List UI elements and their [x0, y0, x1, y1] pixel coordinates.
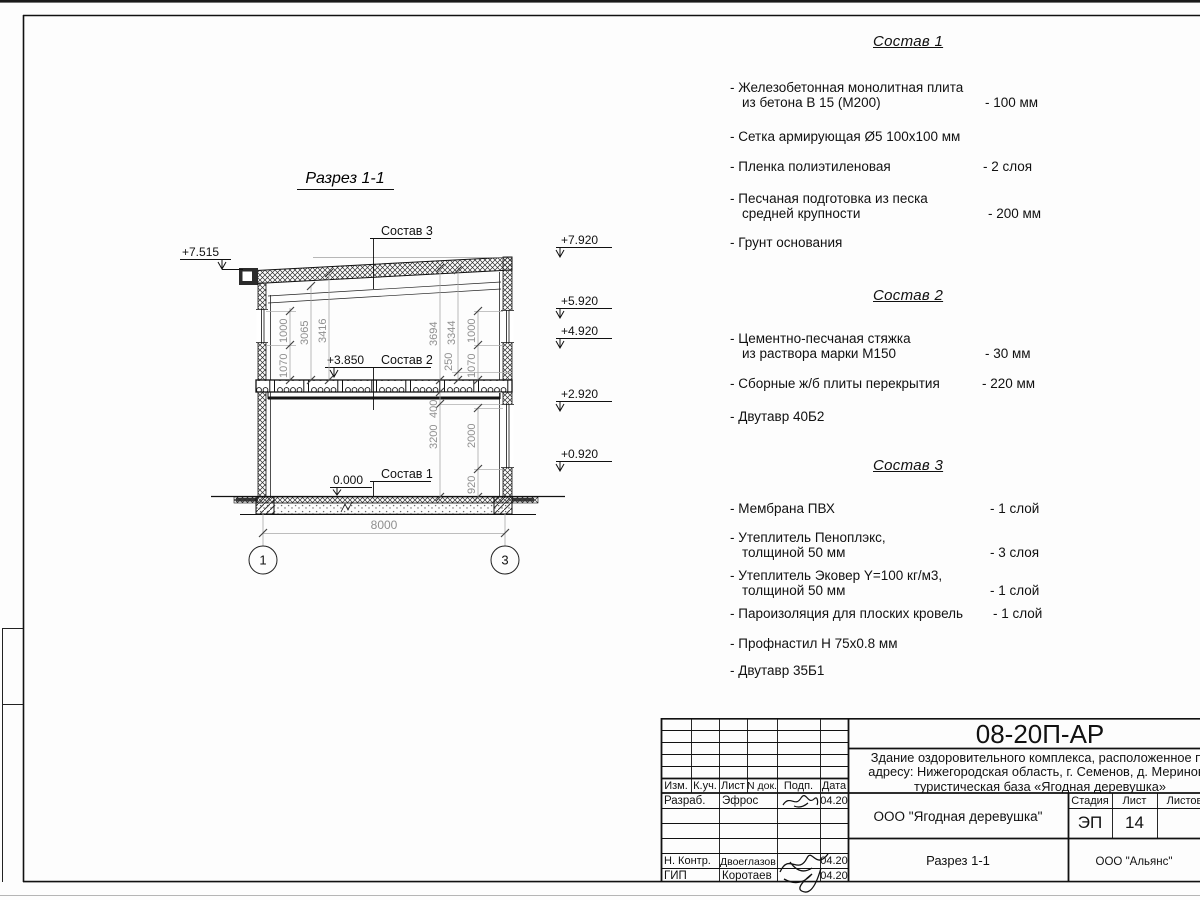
spec1-title: Состав 1 — [873, 33, 943, 50]
svg-text:3200: 3200 — [428, 425, 440, 449]
spec-item: - Железобетонная монолитная плита из бет… — [730, 80, 992, 110]
svg-text:3694: 3694 — [428, 322, 440, 346]
spec-item: - Мембрана ПВХ — [730, 501, 992, 516]
spec-item-value: - 30 мм — [985, 346, 1031, 361]
spec-item: - Сетка армирующая Ø5 100х100 мм — [730, 129, 992, 144]
svg-text:8000: 8000 — [371, 518, 398, 532]
tb-role-gip: ГИП — [664, 870, 687, 882]
svg-text:3065: 3065 — [299, 321, 311, 345]
axis-markers: 1 3 — [249, 546, 519, 574]
svg-text:+7.920: +7.920 — [561, 233, 598, 247]
spec-item: - Двутавр 40Б2 — [730, 409, 992, 424]
right-lower-window — [502, 404, 514, 468]
tb-col-data: Дата — [820, 780, 848, 792]
svg-text:920: 920 — [466, 476, 478, 494]
spec2-title: Состав 2 — [873, 287, 943, 304]
svg-text:+2.920: +2.920 — [561, 387, 598, 401]
tb-col-list: Лист — [719, 780, 747, 792]
svg-text:+5.920: +5.920 — [561, 294, 598, 308]
right-foundation — [494, 497, 512, 514]
svg-text:+3.850: +3.850 — [327, 353, 364, 367]
svg-text:2000: 2000 — [466, 424, 478, 448]
tb-name-gip: Коротаев — [722, 870, 772, 882]
svg-text:1070: 1070 — [278, 354, 290, 378]
spec3-title: Состав 3 — [873, 457, 943, 474]
company-name: ООО "Ягодная деревушка" — [848, 809, 1068, 824]
roof-slab — [239, 257, 512, 303]
svg-text:+0.920: +0.920 — [561, 447, 598, 461]
spec-item-value: - 3 слоя — [990, 545, 1039, 560]
label-sostav3: Состав 3 — [381, 224, 433, 238]
tb-col-ndok: N док. — [747, 780, 777, 792]
svg-text:1: 1 — [259, 553, 266, 568]
elevation-right-2920: +2.920 — [556, 387, 612, 411]
tb-date-gip: 04.20 — [820, 870, 848, 882]
sheet-title: Разрез 1-1 — [848, 853, 1068, 868]
spec-item: - Утеплитель Эковер Y=100 кг/м3, толщино… — [730, 568, 992, 598]
spec-item: - Сборные ж/б плиты перекрытия — [730, 376, 992, 391]
sheet-label: Лист — [1112, 795, 1157, 807]
spec-item: - Двутавр 35Б1 — [730, 663, 992, 678]
svg-text:250: 250 — [443, 353, 455, 371]
svg-text:3416: 3416 — [317, 319, 329, 343]
tb-role-razrab: Разраб. — [664, 795, 705, 807]
tb-role-nkontr: Н. Контр. — [664, 855, 711, 867]
svg-text:400: 400 — [428, 400, 440, 418]
ground-floor-slab — [211, 497, 565, 515]
sheets-label: Листов — [1157, 795, 1200, 807]
project-description: Здание оздоровительного комплекса, распо… — [850, 751, 1200, 794]
spec-item-value: - 220 мм — [982, 376, 1035, 391]
doc-number: 08-20П-АР — [848, 719, 1200, 750]
tb-col-izm: Изм. — [661, 780, 691, 792]
tb-name-nkontr: Двоеглазов — [720, 856, 778, 868]
spec-item-value: - 200 мм — [988, 206, 1041, 221]
spec-item-value: - 1 слой — [990, 501, 1039, 516]
elevation-arrow-icon — [330, 488, 372, 496]
elevation-right-5920: +5.920 — [556, 294, 612, 318]
spec-item-value: - 100 мм — [985, 95, 1038, 110]
elevation-arrow-icon — [556, 248, 612, 258]
tb-name-razrab: Эфрос — [722, 795, 758, 807]
tb-col-kuch: К.уч. — [691, 780, 719, 792]
tb-col-podp: Подп. — [777, 780, 820, 792]
right-upper-window — [502, 310, 514, 343]
tb-date-nkontr: 04.20 — [820, 855, 848, 867]
svg-text:1000: 1000 — [278, 319, 290, 343]
spec-item: - Пленка полиэтиленовая — [730, 159, 992, 174]
beam-40b2 — [268, 397, 500, 400]
elevation-right-7920: +7.920 — [556, 233, 612, 257]
elevation-arrow-icon — [180, 260, 243, 270]
floor2-slab — [256, 380, 512, 400]
elevation-right-4920: +4.920 — [556, 324, 612, 348]
label-sostav2: Состав 2 — [381, 353, 433, 367]
section-title-text: Разрез 1-1 — [305, 170, 384, 187]
svg-text:+4.920: +4.920 — [561, 324, 598, 338]
elevation-left-eave: +7.515 — [180, 245, 243, 270]
stage-label: Стадия — [1068, 795, 1112, 807]
tb-date-razrab: 04.20 — [820, 795, 848, 807]
drawing-sheet: { "drawing": { "title": "Разрез 1-1", "e… — [0, 0, 1200, 900]
contractor-name: ООО "Альянс" — [1068, 856, 1200, 868]
spec-item: - Профнастил Н 75х0.8 мм — [730, 636, 992, 651]
elevation-arrow-icon — [556, 339, 612, 349]
elevation-arrow-icon — [556, 402, 612, 412]
spec-item: - Утеплитель Пеноплэкс, толщиной 50 мм — [730, 530, 992, 560]
spec-item-value: - 2 слоя — [983, 159, 1032, 174]
left-window — [257, 309, 268, 343]
svg-text:3: 3 — [501, 553, 508, 568]
spec-item: - Грунт основания — [730, 235, 992, 250]
elevation-floor2: +3.850 — [325, 353, 374, 377]
section-title: Разрез 1-1 — [297, 170, 394, 190]
svg-text:0.000: 0.000 — [333, 473, 363, 487]
spec-item: - Цементно-песчаная стяжка из раствора м… — [730, 331, 992, 361]
svg-text:1070: 1070 — [466, 354, 478, 378]
stage-value: ЭП — [1068, 813, 1112, 833]
svg-text:+7.515: +7.515 — [182, 245, 219, 259]
spec-item-value: - 1 слой — [993, 606, 1042, 621]
elevation-arrow-icon — [556, 309, 612, 319]
left-foundation — [256, 497, 274, 514]
right-wall — [500, 257, 515, 497]
elevation-arrow-icon — [556, 462, 612, 472]
spec-item: - Пароизоляция для плоских кровель — [730, 606, 992, 621]
svg-text:3344: 3344 — [446, 321, 458, 345]
elevation-arrow-icon — [325, 368, 374, 378]
elevation-right-0920: +0.920 — [556, 447, 612, 471]
spec-item-value: - 1 слой — [990, 583, 1039, 598]
svg-text:1000: 1000 — [466, 319, 478, 343]
signature-razrab — [783, 796, 818, 807]
spec-item: - Песчаная подготовка из песка средней к… — [730, 191, 992, 221]
sheet-value: 14 — [1112, 813, 1157, 833]
label-sostav1: Состав 1 — [381, 467, 433, 481]
elevation-zero: 0.000 — [330, 473, 372, 495]
